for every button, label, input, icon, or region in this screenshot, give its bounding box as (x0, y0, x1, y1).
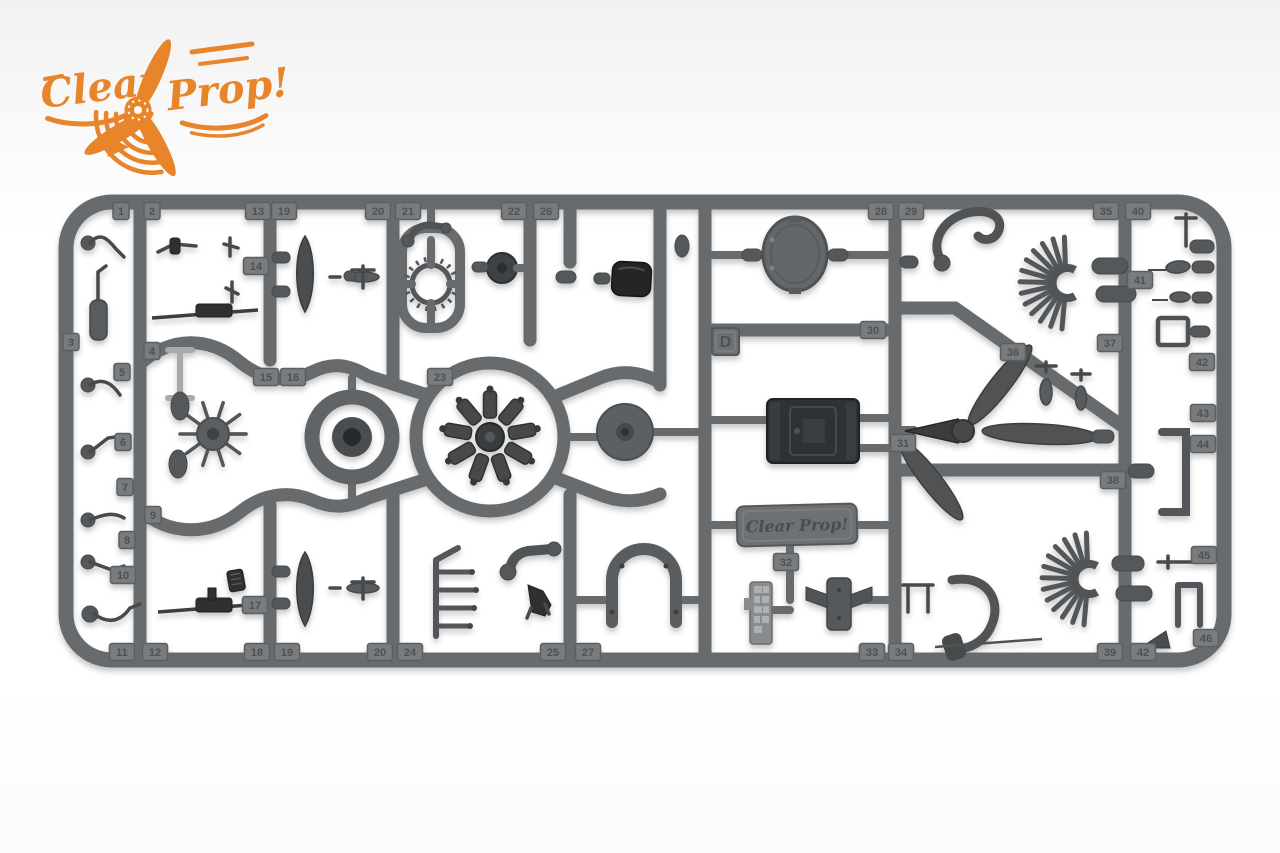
svg-text:20: 20 (374, 647, 386, 659)
part-number-tab: 39 (1098, 644, 1123, 661)
svg-text:7: 7 (122, 482, 128, 494)
part-number-tab: 20 (366, 203, 391, 220)
drop-tank-bottom (272, 552, 313, 626)
svg-text:Prop!: Prop! (163, 59, 292, 121)
svg-text:4: 4 (149, 346, 156, 358)
svg-text:24: 24 (404, 647, 417, 659)
control-lever-parts (81, 236, 140, 622)
curved-exhaust-pipe (900, 212, 1000, 271)
logo-word-prop: Prop! (163, 59, 295, 143)
part-number-tab: 12 (143, 644, 168, 661)
part-number-tab: 11 (110, 644, 135, 661)
svg-text:16: 16 (287, 372, 299, 384)
svg-text:1: 1 (118, 206, 124, 218)
part-number-tab: 2 (144, 203, 160, 220)
svg-text:D: D (720, 334, 732, 351)
svg-text:10: 10 (117, 570, 129, 582)
part-number-tab: 23 (428, 369, 453, 386)
part-number-tab: 18 (245, 644, 270, 661)
pushrod-engine-part (180, 403, 246, 466)
exhaust-collector-top (1020, 237, 1075, 329)
svg-text:19: 19 (278, 206, 290, 218)
part-number-tab: 19 (275, 644, 300, 661)
headrest-part (611, 261, 652, 297)
svg-text:37: 37 (1104, 338, 1116, 350)
winged-bomb-bottom (330, 578, 379, 599)
svg-text:6: 6 (120, 437, 126, 449)
part-number-tab: 42 (1131, 644, 1156, 661)
sprue-parts: Clear Prop! (81, 212, 1214, 663)
svg-text:39: 39 (1104, 647, 1116, 659)
svg-text:41: 41 (1134, 275, 1146, 287)
part-number-tab: 1 (113, 203, 129, 220)
svg-text:13: 13 (252, 206, 264, 218)
part-number-tab: 13 (246, 203, 271, 220)
svg-text:30: 30 (867, 325, 879, 337)
svg-text:42: 42 (1196, 357, 1208, 369)
svg-text:14: 14 (250, 261, 263, 273)
svg-text:8: 8 (124, 535, 130, 547)
gun-sight-part (527, 585, 551, 618)
armor-seat-part (806, 578, 872, 630)
machine-gun-parts (152, 238, 258, 318)
part-number-tab: 42 (1190, 354, 1215, 371)
exhaust-collector-bottom (1042, 533, 1097, 625)
part-number-tab: 43 (1191, 405, 1216, 422)
svg-text:23: 23 (434, 372, 446, 384)
svg-text:15: 15 (260, 372, 272, 384)
part-number-tab: 22 (502, 203, 527, 220)
photo-of-model-kit-sprue: Clear Prop! (0, 0, 1280, 853)
svg-text:34: 34 (895, 647, 908, 659)
svg-text:19: 19 (281, 647, 293, 659)
sprue-frame-d: Clear Prop! (63, 202, 1224, 662)
part-number-tab: 6 (115, 434, 131, 451)
part-number-tab: 41 (1128, 272, 1153, 289)
svg-text:26: 26 (540, 206, 552, 218)
svg-text:36: 36 (1007, 347, 1019, 359)
svg-text:40: 40 (1132, 206, 1144, 218)
part-number-tab: 26 (534, 203, 559, 220)
part-number-tab: 37 (1098, 335, 1123, 352)
svg-text:9: 9 (150, 510, 156, 522)
engine-mount-part (436, 548, 479, 636)
i-beam-part (168, 350, 192, 398)
part-number-tab: 9 (145, 507, 161, 524)
svg-text:11: 11 (116, 647, 128, 659)
part-number-tab: 14 (244, 258, 269, 275)
radiator-part (767, 399, 859, 463)
propeller-part (892, 339, 1114, 525)
svg-text:42: 42 (1137, 647, 1149, 659)
part-number-tab: 46 (1194, 630, 1219, 647)
part-number-tab: 19 (272, 203, 297, 220)
part-number-tab: 32 (774, 554, 799, 571)
svg-text:32: 32 (780, 557, 792, 569)
part-number-tab: 7 (117, 479, 133, 496)
svg-text:33: 33 (866, 647, 878, 659)
part-number-tab: 5 (114, 364, 130, 381)
part-number-tab: 3 (63, 334, 79, 351)
gear-ring-part (406, 240, 456, 323)
part-number-tab: 28 (869, 203, 894, 220)
part-number-tab: 40 (1126, 203, 1151, 220)
part-number-tab: 31 (891, 435, 916, 452)
svg-text:31: 31 (897, 438, 909, 450)
rocket-part-2 (1152, 292, 1212, 303)
part-number-tab: 29 (899, 203, 924, 220)
brand-plate: Clear Prop! (736, 503, 857, 546)
part-number-tab: 45 (1192, 547, 1217, 564)
winged-bomb-top (330, 266, 379, 288)
svg-text:Clear Prop!: Clear Prop! (745, 515, 848, 537)
oval-cover-part (763, 216, 827, 294)
svg-text:12: 12 (149, 647, 161, 659)
drop-tank-top (272, 236, 313, 312)
svg-text:44: 44 (1197, 439, 1210, 451)
svg-text:28: 28 (875, 206, 887, 218)
fork-part-right (1178, 585, 1200, 625)
svg-text:17: 17 (249, 600, 261, 612)
part-number-tab: 36 (1001, 344, 1026, 361)
svg-text:20: 20 (372, 206, 384, 218)
part-number-tab: 4 (144, 343, 160, 360)
svg-text:43: 43 (1197, 408, 1209, 420)
rocket-part-1 (1148, 260, 1214, 274)
svg-text:18: 18 (251, 647, 263, 659)
svg-text:25: 25 (547, 647, 559, 659)
cowling-ring-part (312, 397, 392, 477)
wheel-part (472, 253, 530, 283)
sprue-letter-tab: D (712, 328, 739, 355)
svg-text:45: 45 (1198, 550, 1210, 562)
elbow-pipe-top (402, 223, 451, 247)
svg-text:29: 29 (905, 206, 917, 218)
part-number-tab: 21 (396, 203, 421, 220)
radial-engine-part (439, 386, 542, 487)
svg-text:35: 35 (1100, 206, 1112, 218)
fork-part (903, 585, 933, 612)
cowl-front-disc (597, 404, 653, 460)
horseshoe-frame-part (610, 549, 679, 622)
part-number-tab: 38 (1101, 472, 1126, 489)
svg-text:46: 46 (1200, 633, 1212, 645)
part-number-tab: 33 (860, 644, 885, 661)
part-number-tab: 24 (398, 644, 423, 661)
curved-pipe-bottom (940, 579, 994, 662)
part-number-tab: 10 (111, 567, 136, 584)
window-frame-part (1158, 318, 1210, 345)
part-number-tab: 17 (243, 597, 268, 614)
svg-text:27: 27 (582, 647, 594, 659)
part-number-tab: 16 (281, 369, 306, 386)
svg-text:2: 2 (149, 206, 155, 218)
svg-text:21: 21 (402, 206, 414, 218)
grip-part (226, 569, 245, 592)
bracket-frame-part (1128, 432, 1186, 512)
part-number-tab: 27 (576, 644, 601, 661)
part-number-tab: 30 (861, 322, 886, 339)
part-number-tab: 8 (119, 532, 135, 549)
svg-text:5: 5 (119, 367, 125, 379)
part-number-tab: 20 (368, 644, 393, 661)
instrument-strip-part (744, 582, 772, 644)
svg-text:38: 38 (1107, 475, 1119, 487)
part-number-tab: 34 (889, 644, 914, 661)
part-number-tab: 44 (1191, 436, 1216, 453)
part-number-tab: 15 (254, 369, 279, 386)
svg-text:3: 3 (68, 337, 74, 349)
elbow-pipe-bottom (500, 542, 561, 580)
svg-text:22: 22 (508, 206, 520, 218)
part-number-tab: 25 (541, 644, 566, 661)
clear-prop-logo: Clear Prop! (38, 36, 295, 180)
part-number-tab: 35 (1094, 203, 1119, 220)
